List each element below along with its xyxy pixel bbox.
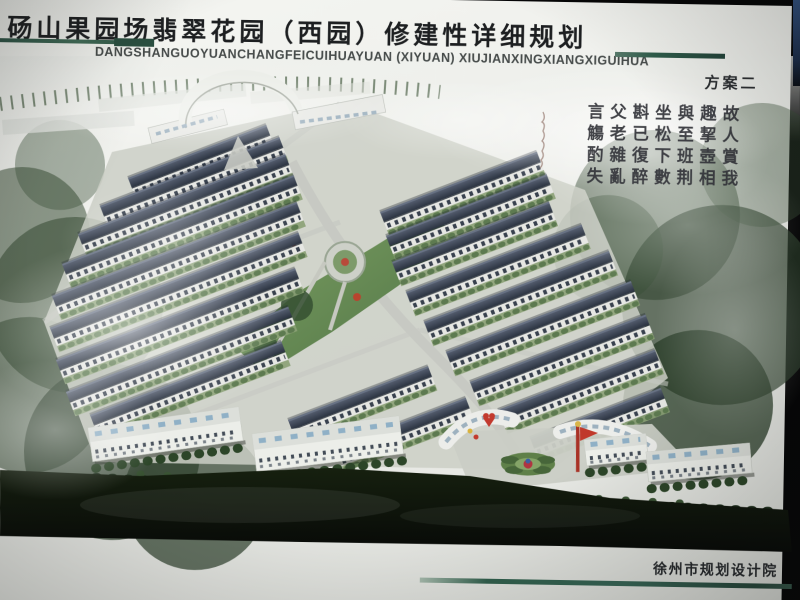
calligraphy-column: 趣挈壺相 [696,104,714,210]
calligraphy-column: 與至班荆 [674,104,692,210]
plan-poster: 砀山果园场翡翠花园（西园）修建性详细规划 DANGSHANGUOYUANCHAN… [0,0,792,600]
flower-bed [501,453,555,476]
calligraphy-column: 斟已復醉 [629,103,647,209]
photo-backdrop: 砀山果园场翡翠花园（西园）修建性详细规划 DANGSHANGUOYUANCHAN… [0,0,800,600]
aerial-rendering [0,0,800,600]
scheme-label: 方案二 [704,71,758,93]
commercial-building [584,433,651,473]
calligraphy-column: 故人賞我 [719,105,737,211]
calligraphy-column: 坐松下數 [651,104,669,210]
calligraphy-poem: 故人賞我趣挈壺相與至班荆坐松下數斟已復醉父老雜亂言觴酌失 [563,102,737,211]
institute-name: 徐州市规划设计院 [653,559,778,581]
calligraphy-column: 言觴酌失 [584,102,602,208]
calligraphy-column: 父老雜亂 [606,103,624,209]
photo-edge-blue-strip [793,0,800,86]
